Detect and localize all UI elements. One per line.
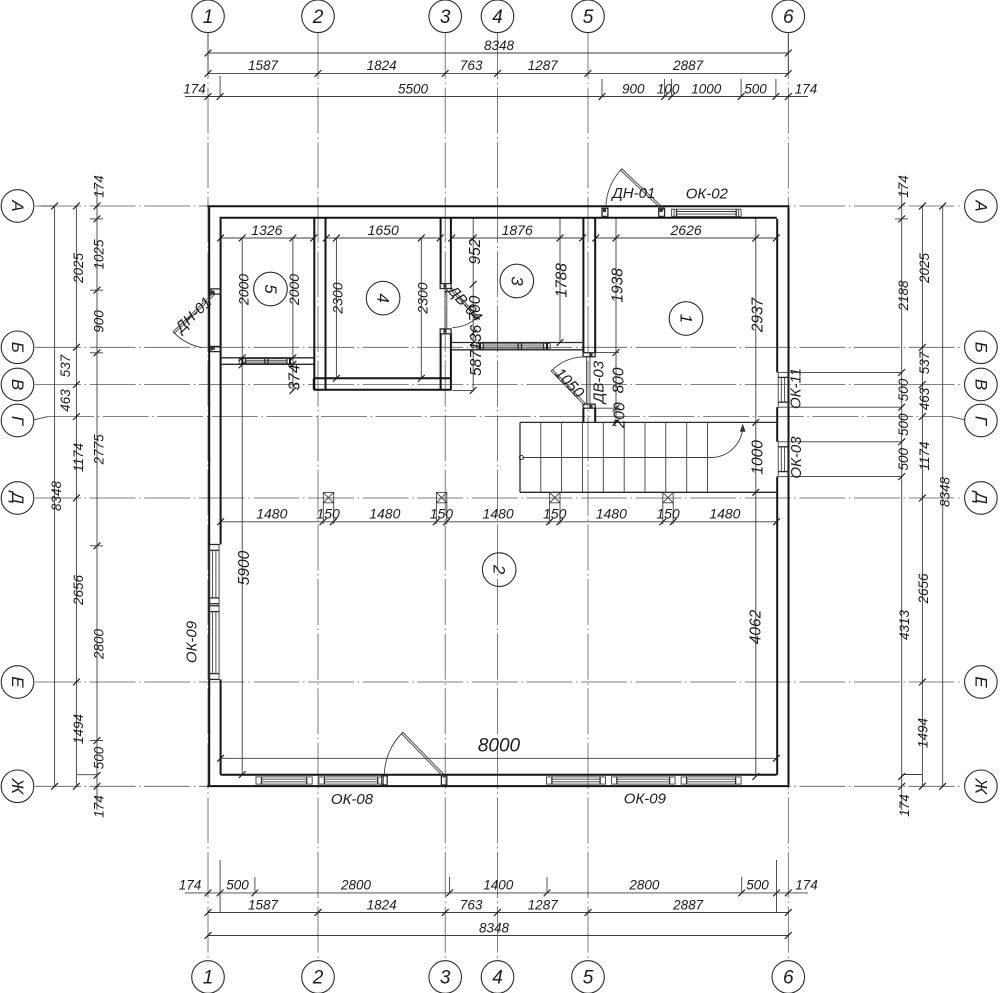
- svg-text:ОК-08: ОК-08: [331, 791, 374, 808]
- svg-text:1480: 1480: [256, 506, 287, 522]
- svg-text:4: 4: [492, 7, 503, 28]
- svg-text:537: 537: [917, 351, 932, 374]
- svg-text:1480: 1480: [369, 506, 400, 522]
- svg-text:1788: 1788: [554, 263, 571, 298]
- svg-text:136: 136: [468, 324, 485, 350]
- svg-text:2000: 2000: [236, 274, 252, 306]
- svg-text:2937: 2937: [749, 296, 766, 333]
- svg-text:1025: 1025: [91, 239, 106, 270]
- svg-text:Б: Б: [8, 342, 27, 353]
- svg-text:2: 2: [312, 968, 324, 989]
- svg-text:2775: 2775: [91, 434, 106, 466]
- svg-text:2800: 2800: [628, 878, 660, 893]
- svg-text:8348: 8348: [49, 480, 64, 511]
- svg-text:500: 500: [896, 413, 911, 436]
- svg-text:900: 900: [91, 310, 106, 333]
- svg-text:1824: 1824: [367, 897, 397, 912]
- svg-text:2656: 2656: [71, 574, 86, 606]
- svg-text:1: 1: [677, 314, 696, 323]
- svg-text:100: 100: [657, 81, 680, 96]
- svg-text:ОК-11: ОК-11: [787, 368, 804, 409]
- svg-text:1824: 1824: [367, 58, 397, 73]
- svg-text:2800: 2800: [340, 878, 372, 893]
- svg-text:500: 500: [896, 378, 911, 401]
- svg-text:1: 1: [203, 7, 214, 28]
- svg-text:2: 2: [312, 7, 324, 28]
- svg-text:150: 150: [316, 506, 340, 522]
- svg-text:ОК-03: ОК-03: [788, 436, 805, 479]
- svg-text:1400: 1400: [483, 878, 514, 893]
- svg-text:1287: 1287: [528, 58, 559, 73]
- svg-text:1494: 1494: [916, 718, 931, 748]
- svg-text:А: А: [8, 199, 27, 211]
- svg-text:2: 2: [490, 564, 509, 575]
- svg-text:1174: 1174: [917, 441, 932, 470]
- svg-text:174: 174: [795, 878, 818, 893]
- svg-text:1480: 1480: [483, 506, 514, 522]
- svg-text:952: 952: [467, 238, 484, 264]
- svg-text:Е: Е: [971, 676, 990, 688]
- svg-text:1000: 1000: [691, 81, 722, 96]
- svg-text:174: 174: [179, 878, 202, 893]
- svg-text:1480: 1480: [596, 506, 627, 522]
- svg-text:8348: 8348: [937, 476, 952, 507]
- svg-text:2300: 2300: [330, 282, 346, 314]
- svg-text:1287: 1287: [528, 897, 559, 912]
- svg-text:1876: 1876: [502, 222, 533, 238]
- svg-text:5: 5: [583, 7, 594, 28]
- svg-text:8348: 8348: [484, 38, 515, 53]
- svg-text:174: 174: [91, 175, 106, 198]
- svg-text:2025: 2025: [917, 252, 932, 284]
- svg-text:763: 763: [460, 897, 483, 912]
- svg-text:1000: 1000: [749, 440, 766, 475]
- svg-text:ОК-02: ОК-02: [686, 186, 729, 203]
- svg-text:5500: 5500: [398, 81, 429, 96]
- svg-text:1938: 1938: [609, 268, 626, 303]
- svg-text:174: 174: [795, 81, 818, 96]
- svg-text:4313: 4313: [897, 609, 912, 640]
- svg-text:4: 4: [492, 968, 503, 989]
- svg-text:ДВ-03: ДВ-03: [590, 360, 607, 405]
- svg-text:3: 3: [440, 7, 451, 28]
- svg-text:463: 463: [917, 387, 932, 410]
- svg-text:В: В: [971, 379, 990, 390]
- svg-text:800: 800: [610, 367, 627, 393]
- svg-text:2188: 2188: [896, 280, 911, 312]
- svg-text:174: 174: [183, 81, 206, 96]
- svg-text:5: 5: [261, 284, 280, 294]
- svg-text:500: 500: [896, 447, 911, 470]
- svg-text:1: 1: [203, 968, 214, 989]
- svg-text:ОК-09: ОК-09: [624, 791, 667, 808]
- svg-text:6: 6: [783, 7, 794, 28]
- svg-text:2887: 2887: [672, 897, 704, 912]
- svg-text:2300: 2300: [415, 282, 431, 314]
- svg-text:ОК-09: ОК-09: [183, 620, 200, 663]
- svg-text:1494: 1494: [71, 714, 86, 744]
- svg-text:150: 150: [543, 506, 567, 522]
- svg-text:Д: Д: [971, 490, 990, 504]
- svg-text:2000: 2000: [286, 274, 302, 306]
- svg-text:Б: Б: [971, 342, 990, 353]
- svg-text:5900: 5900: [236, 550, 253, 585]
- svg-text:150: 150: [656, 506, 680, 522]
- svg-text:1650: 1650: [368, 222, 399, 238]
- svg-text:2025: 2025: [71, 252, 86, 284]
- svg-text:174: 174: [896, 175, 911, 198]
- svg-text:587: 587: [468, 349, 485, 376]
- svg-text:8000: 8000: [478, 736, 521, 757]
- svg-text:500: 500: [746, 878, 769, 893]
- svg-text:174: 174: [897, 794, 912, 817]
- svg-text:463: 463: [58, 389, 73, 412]
- svg-text:200: 200: [611, 402, 628, 429]
- svg-text:Ж: Ж: [971, 778, 990, 796]
- svg-text:А: А: [971, 199, 990, 211]
- svg-text:1326: 1326: [251, 222, 282, 238]
- svg-text:6: 6: [783, 968, 794, 989]
- svg-text:Ж: Ж: [8, 778, 27, 796]
- svg-text:2800: 2800: [91, 628, 106, 660]
- svg-text:2626: 2626: [670, 222, 702, 238]
- svg-text:2656: 2656: [916, 573, 931, 605]
- svg-text:374: 374: [287, 364, 304, 390]
- svg-text:150: 150: [430, 506, 454, 522]
- svg-text:Е: Е: [8, 676, 27, 688]
- svg-text:5: 5: [583, 968, 594, 989]
- svg-text:Д: Д: [8, 490, 27, 504]
- svg-text:900: 900: [622, 81, 645, 96]
- svg-text:4062: 4062: [747, 609, 764, 644]
- svg-text:2887: 2887: [672, 58, 704, 73]
- svg-text:763: 763: [460, 58, 483, 73]
- svg-text:1174: 1174: [71, 443, 86, 472]
- svg-text:В: В: [8, 379, 27, 390]
- svg-text:500: 500: [91, 746, 106, 769]
- svg-text:500: 500: [226, 878, 249, 893]
- svg-text:174: 174: [91, 795, 106, 818]
- svg-text:8348: 8348: [479, 920, 510, 935]
- svg-text:4: 4: [374, 293, 393, 302]
- svg-text:1480: 1480: [709, 506, 740, 522]
- svg-text:3: 3: [507, 276, 526, 286]
- svg-text:ДН-01: ДН-01: [610, 185, 655, 202]
- svg-text:3: 3: [440, 968, 451, 989]
- svg-text:1587: 1587: [248, 58, 279, 73]
- svg-text:537: 537: [58, 354, 73, 377]
- svg-text:1587: 1587: [248, 897, 279, 912]
- svg-text:500: 500: [744, 81, 767, 96]
